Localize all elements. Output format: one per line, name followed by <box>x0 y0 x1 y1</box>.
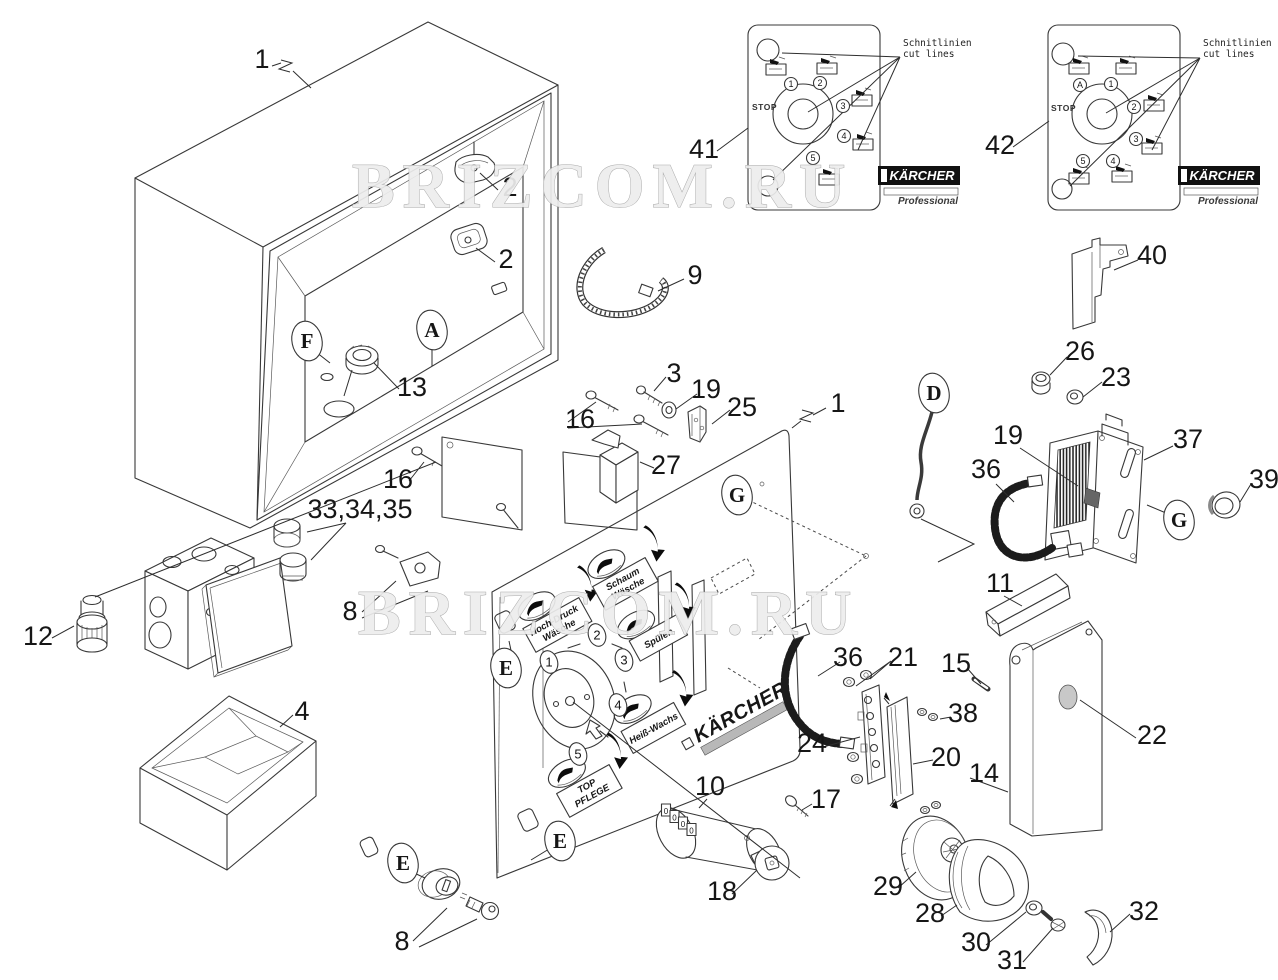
part-number-callout: 18 <box>707 876 737 906</box>
part-number-callout: 39 <box>1249 464 1278 494</box>
part-number-callout: 26 <box>1065 336 1095 366</box>
part-number-callout: 22 <box>1137 720 1167 750</box>
washer-23 <box>1067 390 1083 404</box>
relay-module-27 <box>592 430 638 503</box>
part-number-callout: 8 <box>342 596 357 626</box>
decal-stop-text: STOP <box>1051 103 1076 113</box>
coin-chute-panel-14 <box>1010 621 1102 836</box>
grommet-22 <box>1059 685 1077 709</box>
counter-digit: 0 <box>689 827 694 836</box>
part-number-callout: 11 <box>986 568 1014 598</box>
decal-sub-text: Professional <box>1198 196 1258 207</box>
cabinet-housing <box>135 22 558 528</box>
reference-letter-text: G <box>1171 508 1187 532</box>
break-marks <box>279 60 813 422</box>
part-number-callout: 33,34,35 <box>307 494 412 524</box>
part-number-callout: 17 <box>811 784 841 814</box>
part-number-callout: 40 <box>1137 240 1167 270</box>
part-number-callout: 23 <box>1101 362 1131 392</box>
blanking-disc-18 <box>755 846 789 880</box>
part-number-callout: 14 <box>969 758 999 788</box>
diagram-canvas: Hoch-Druck Wäsche Schaum Wäsche Spülen H… <box>0 0 1278 980</box>
watermark-text: BRIZCOM.RU <box>358 577 859 648</box>
counter-digit: 0 <box>664 807 669 816</box>
mounting-nut-13 <box>321 345 378 417</box>
program-decal-42: STOP Schnitlinien cut lines KÄRCHER Prof… <box>1048 25 1272 210</box>
dial-position-number: 1 <box>545 655 552 670</box>
reference-letter-text: E <box>499 656 513 680</box>
decal-position-number: 4 <box>841 131 846 141</box>
part-number-callout: 28 <box>915 898 945 928</box>
screw-17 <box>784 794 808 817</box>
part-number-callout: 42 <box>985 130 1015 160</box>
decal-position-number: 2 <box>1131 102 1136 112</box>
program-sticker-5: TOP PFLEGE <box>542 730 640 817</box>
dial-position-number: 3 <box>620 653 627 668</box>
counter-digit: 0 <box>672 814 677 823</box>
decal-brand-text: KÄRCHER <box>890 168 956 183</box>
part-number-callout: 21 <box>888 642 918 672</box>
terminal-strip-24 <box>858 685 885 784</box>
curved-lever-32 <box>1085 910 1112 965</box>
part-number-callout: 2 <box>498 244 513 274</box>
decal-position-number: 1 <box>1108 79 1113 89</box>
part-number-callout: 1 <box>254 44 269 74</box>
decal-sub-text: Professional <box>898 196 958 207</box>
decal-position-number: 3 <box>1133 134 1138 144</box>
lock-cylinder-8 <box>415 865 463 904</box>
decal-position-number: 4 <box>1110 156 1115 166</box>
bracket-40 <box>1072 238 1128 329</box>
part-number-callout: 8 <box>394 926 409 956</box>
validator-cable-36 <box>995 475 1052 557</box>
washer-30 <box>1026 901 1042 915</box>
decal-position-number: 1 <box>788 79 793 89</box>
part-number-callout: 19 <box>691 374 721 404</box>
part-number-callout: 16 <box>383 464 413 494</box>
decal-cut-note: cut lines <box>903 49 954 60</box>
part-number-callout: 27 <box>651 450 681 480</box>
part-number-callout: 1 <box>830 388 845 418</box>
part-number-callout: 30 <box>961 927 991 957</box>
part-number-callout: 4 <box>294 696 309 726</box>
ground-strap-d <box>910 412 932 518</box>
part-number-callout: 31 <box>997 945 1027 975</box>
coin-validator-37 <box>1045 414 1143 563</box>
decal-position-number: A <box>1077 80 1083 90</box>
decal-cut-note: Schnitlinien <box>903 38 972 49</box>
lock-key <box>460 893 499 920</box>
cover-strip-20 <box>884 692 913 809</box>
part-number-callout: 38 <box>948 698 978 728</box>
part-number-callout: 37 <box>1173 424 1203 454</box>
part-number-callout: 20 <box>931 742 961 772</box>
part-number-callout: 9 <box>687 260 702 290</box>
coin-cup-shell-28 <box>949 840 1028 922</box>
part-number-callout: 10 <box>695 771 725 801</box>
part-number-callout: 32 <box>1129 896 1159 926</box>
mounting-plate-left <box>442 437 522 530</box>
door-latch-lower <box>449 221 489 256</box>
part-number-callout: 16 <box>565 404 595 434</box>
decal-stop-text: STOP <box>752 102 777 112</box>
reference-letter-text: A <box>424 318 440 342</box>
bolt-31 <box>1043 912 1065 931</box>
part-number-callout: 12 <box>23 621 53 651</box>
dial-position-number: 5 <box>574 747 581 762</box>
part-number-callout: 36 <box>971 454 1001 484</box>
part-number-callout: 3 <box>666 358 681 388</box>
decal-position-number: 3 <box>840 101 845 111</box>
dial-position-number: 4 <box>614 698 621 713</box>
watermark-text: BRIZCOM.RU <box>352 150 853 221</box>
part-number-callout: 15 <box>941 648 971 678</box>
decal-position-number: 2 <box>817 78 822 88</box>
coin-box-4 <box>140 696 316 870</box>
part-number-callout: 24 <box>797 728 827 758</box>
decal-position-number: 5 <box>1080 156 1085 166</box>
reference-letter-text: E <box>396 851 410 875</box>
small-clip <box>491 282 507 295</box>
part-number-callout: 19 <box>993 420 1023 450</box>
reference-letter-text: F <box>301 329 314 353</box>
exploded-parts-diagram: Hoch-Druck Wäsche Schaum Wäsche Spülen H… <box>0 0 1278 980</box>
counter-digit: 0 <box>681 820 686 829</box>
reference-letter-text: D <box>926 381 941 405</box>
decal-cut-note: cut lines <box>1203 49 1254 60</box>
cable-gland-12 <box>77 596 107 653</box>
reference-letter-text: E <box>553 829 567 853</box>
reference-letter-text: G <box>729 483 745 507</box>
part-number-callout: 13 <box>397 372 427 402</box>
part-number-callout: 29 <box>873 871 903 901</box>
decal-cut-note: Schnitlinien <box>1203 38 1272 49</box>
part-number-callout: 25 <box>727 392 757 422</box>
nut-26 <box>1032 372 1050 394</box>
cable-strap-9 <box>580 250 666 315</box>
cap-39 <box>1209 489 1243 521</box>
decal-brand-text: KÄRCHER <box>1190 168 1256 183</box>
